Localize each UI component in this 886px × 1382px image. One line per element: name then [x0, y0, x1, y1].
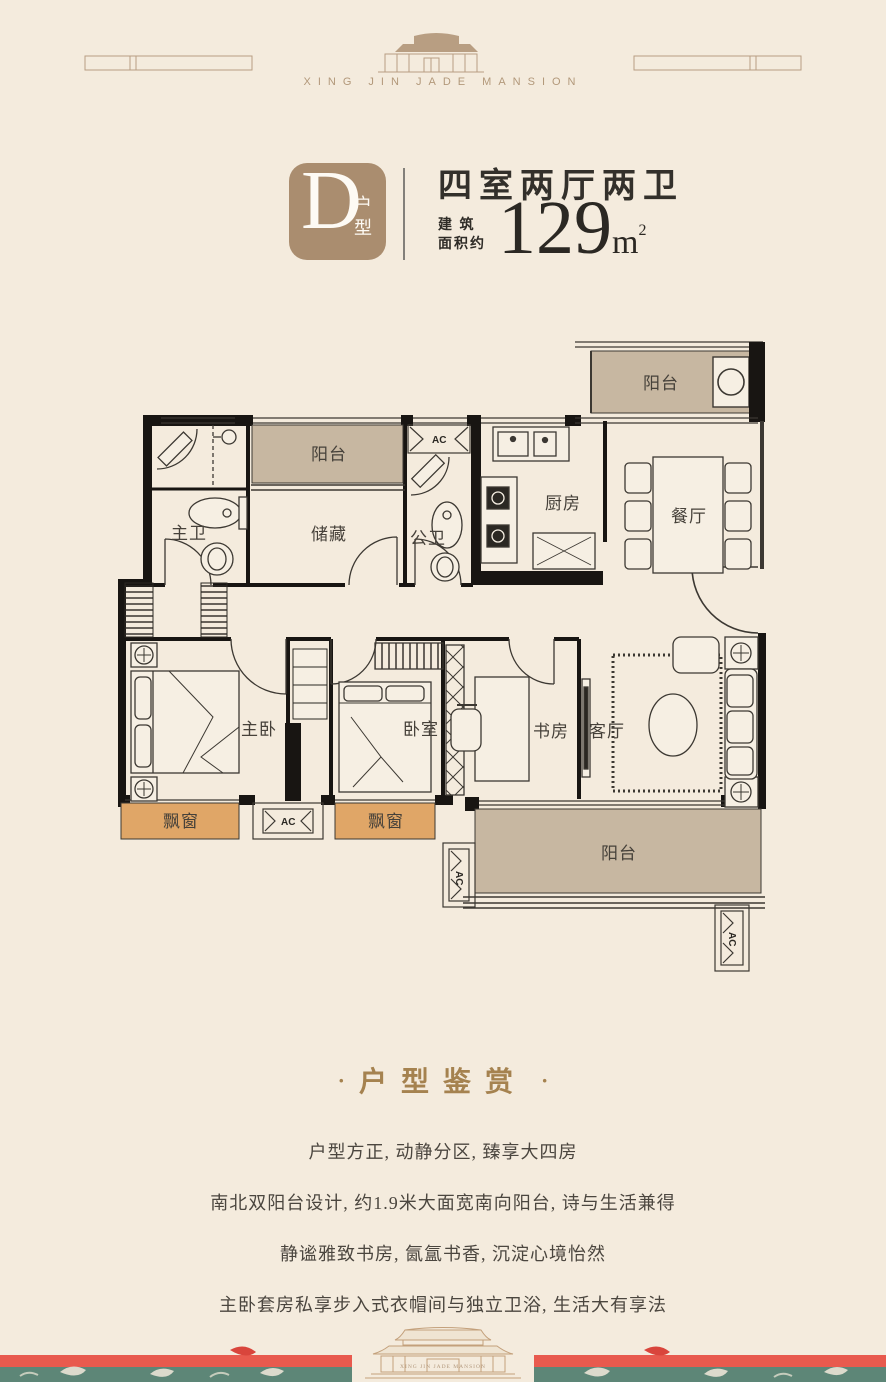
right-dot: ·	[541, 1068, 548, 1093]
svg-text:厨房: 厨房	[545, 494, 581, 513]
room-study: 书房	[446, 645, 569, 795]
header-left-bar	[85, 56, 252, 70]
room-balcony-north: 阳台	[575, 342, 765, 422]
appreciation-line: 主卧套房私享步入式衣帽间与独立卫浴, 生活大有享法	[0, 1291, 886, 1317]
bay-window-bedroom: 飘窗	[335, 803, 435, 839]
svg-text:AC: AC	[453, 871, 464, 885]
header-right-bar	[634, 56, 801, 70]
appreciation-lines: 户型方正, 动静分区, 臻享大四房 南北双阳台设计, 约1.9米大面宽南向阳台,…	[0, 1138, 886, 1342]
svg-text:阳台: 阳台	[311, 445, 347, 464]
svg-text:阳台: 阳台	[601, 844, 637, 863]
svg-text:餐厅: 餐厅	[671, 507, 707, 526]
room-dining: 餐厅	[625, 457, 751, 573]
left-dot: ·	[338, 1068, 345, 1093]
svg-text:阳台: 阳台	[643, 374, 679, 393]
crane-decoration	[534, 1342, 886, 1382]
area-row: 建 筑 面积约 129 m2	[438, 192, 646, 264]
pavilion-icon	[378, 33, 484, 72]
ac-unit-south: AC	[253, 803, 323, 839]
appreciation-line: 南北双阳台设计, 约1.9米大面宽南向阳台, 诗与生活兼得	[0, 1189, 886, 1215]
unit-type-badge: D 户型	[289, 163, 386, 260]
appreciation-line: 户型方正, 动静分区, 臻享大四房	[0, 1138, 886, 1164]
room-storage: 储藏	[311, 525, 347, 544]
room-balcony-small: 阳台	[252, 425, 403, 483]
svg-text:飘窗: 飘窗	[163, 812, 199, 831]
svg-text:主卧: 主卧	[241, 720, 277, 739]
svg-text:公卫: 公卫	[410, 529, 446, 548]
appreciation-title: ·户型鉴赏·	[0, 1060, 886, 1100]
svg-text:主卫: 主卫	[171, 524, 207, 543]
area-prefix: 建 筑 面积约	[438, 216, 486, 254]
room-living: 客厅	[582, 637, 758, 807]
room-kitchen: 厨房	[481, 427, 595, 569]
svg-text:客厅: 客厅	[589, 722, 625, 741]
room-guest-bath: 公卫	[410, 455, 462, 581]
room-bedroom: 卧室	[339, 643, 443, 792]
svg-text:储藏: 储藏	[311, 525, 347, 544]
footer-band-right	[534, 1355, 886, 1382]
appreciation-line: 静谧雅致书房, 氤氲书香, 沉淀心境怡然	[0, 1240, 886, 1266]
ac-unit-north: AC	[408, 425, 470, 453]
svg-text:卧室: 卧室	[403, 720, 439, 739]
footer-brand-name: XING JIN JADE MANSION	[400, 1364, 486, 1370]
poster-page: XING JIN JADE MANSION D 户型 四室两厅两卫 建 筑 面积…	[0, 0, 886, 1382]
unit-type-suffix: 户型	[349, 195, 375, 241]
footer-pavilion-icon: XING JIN JADE MANSION	[343, 1322, 543, 1382]
room-master-bath: 主卫	[157, 425, 247, 575]
bay-window-master: 飘窗	[121, 803, 239, 839]
header-ornament	[0, 0, 886, 80]
brand-name: XING JIN JADE MANSION	[0, 76, 886, 88]
room-master-bedroom: 主卧	[131, 643, 277, 801]
svg-text:AC: AC	[432, 435, 446, 446]
area-number: 129	[498, 192, 612, 264]
washing-machine-icon	[713, 357, 749, 407]
area-superscript: 2	[638, 222, 646, 239]
footer-band-left	[0, 1355, 352, 1382]
area-unit: m2	[612, 223, 646, 260]
crane-decoration	[0, 1342, 352, 1382]
svg-text:飘窗: 飘窗	[368, 812, 404, 831]
floor-plan: 阳台	[113, 337, 773, 987]
svg-text:书房: 书房	[533, 722, 569, 741]
svg-text:AC: AC	[281, 817, 295, 828]
ac-unit-south-east: AC	[715, 905, 749, 971]
title-divider	[403, 168, 405, 260]
room-balcony-south: 阳台	[463, 809, 765, 908]
svg-text:AC: AC	[726, 932, 737, 946]
